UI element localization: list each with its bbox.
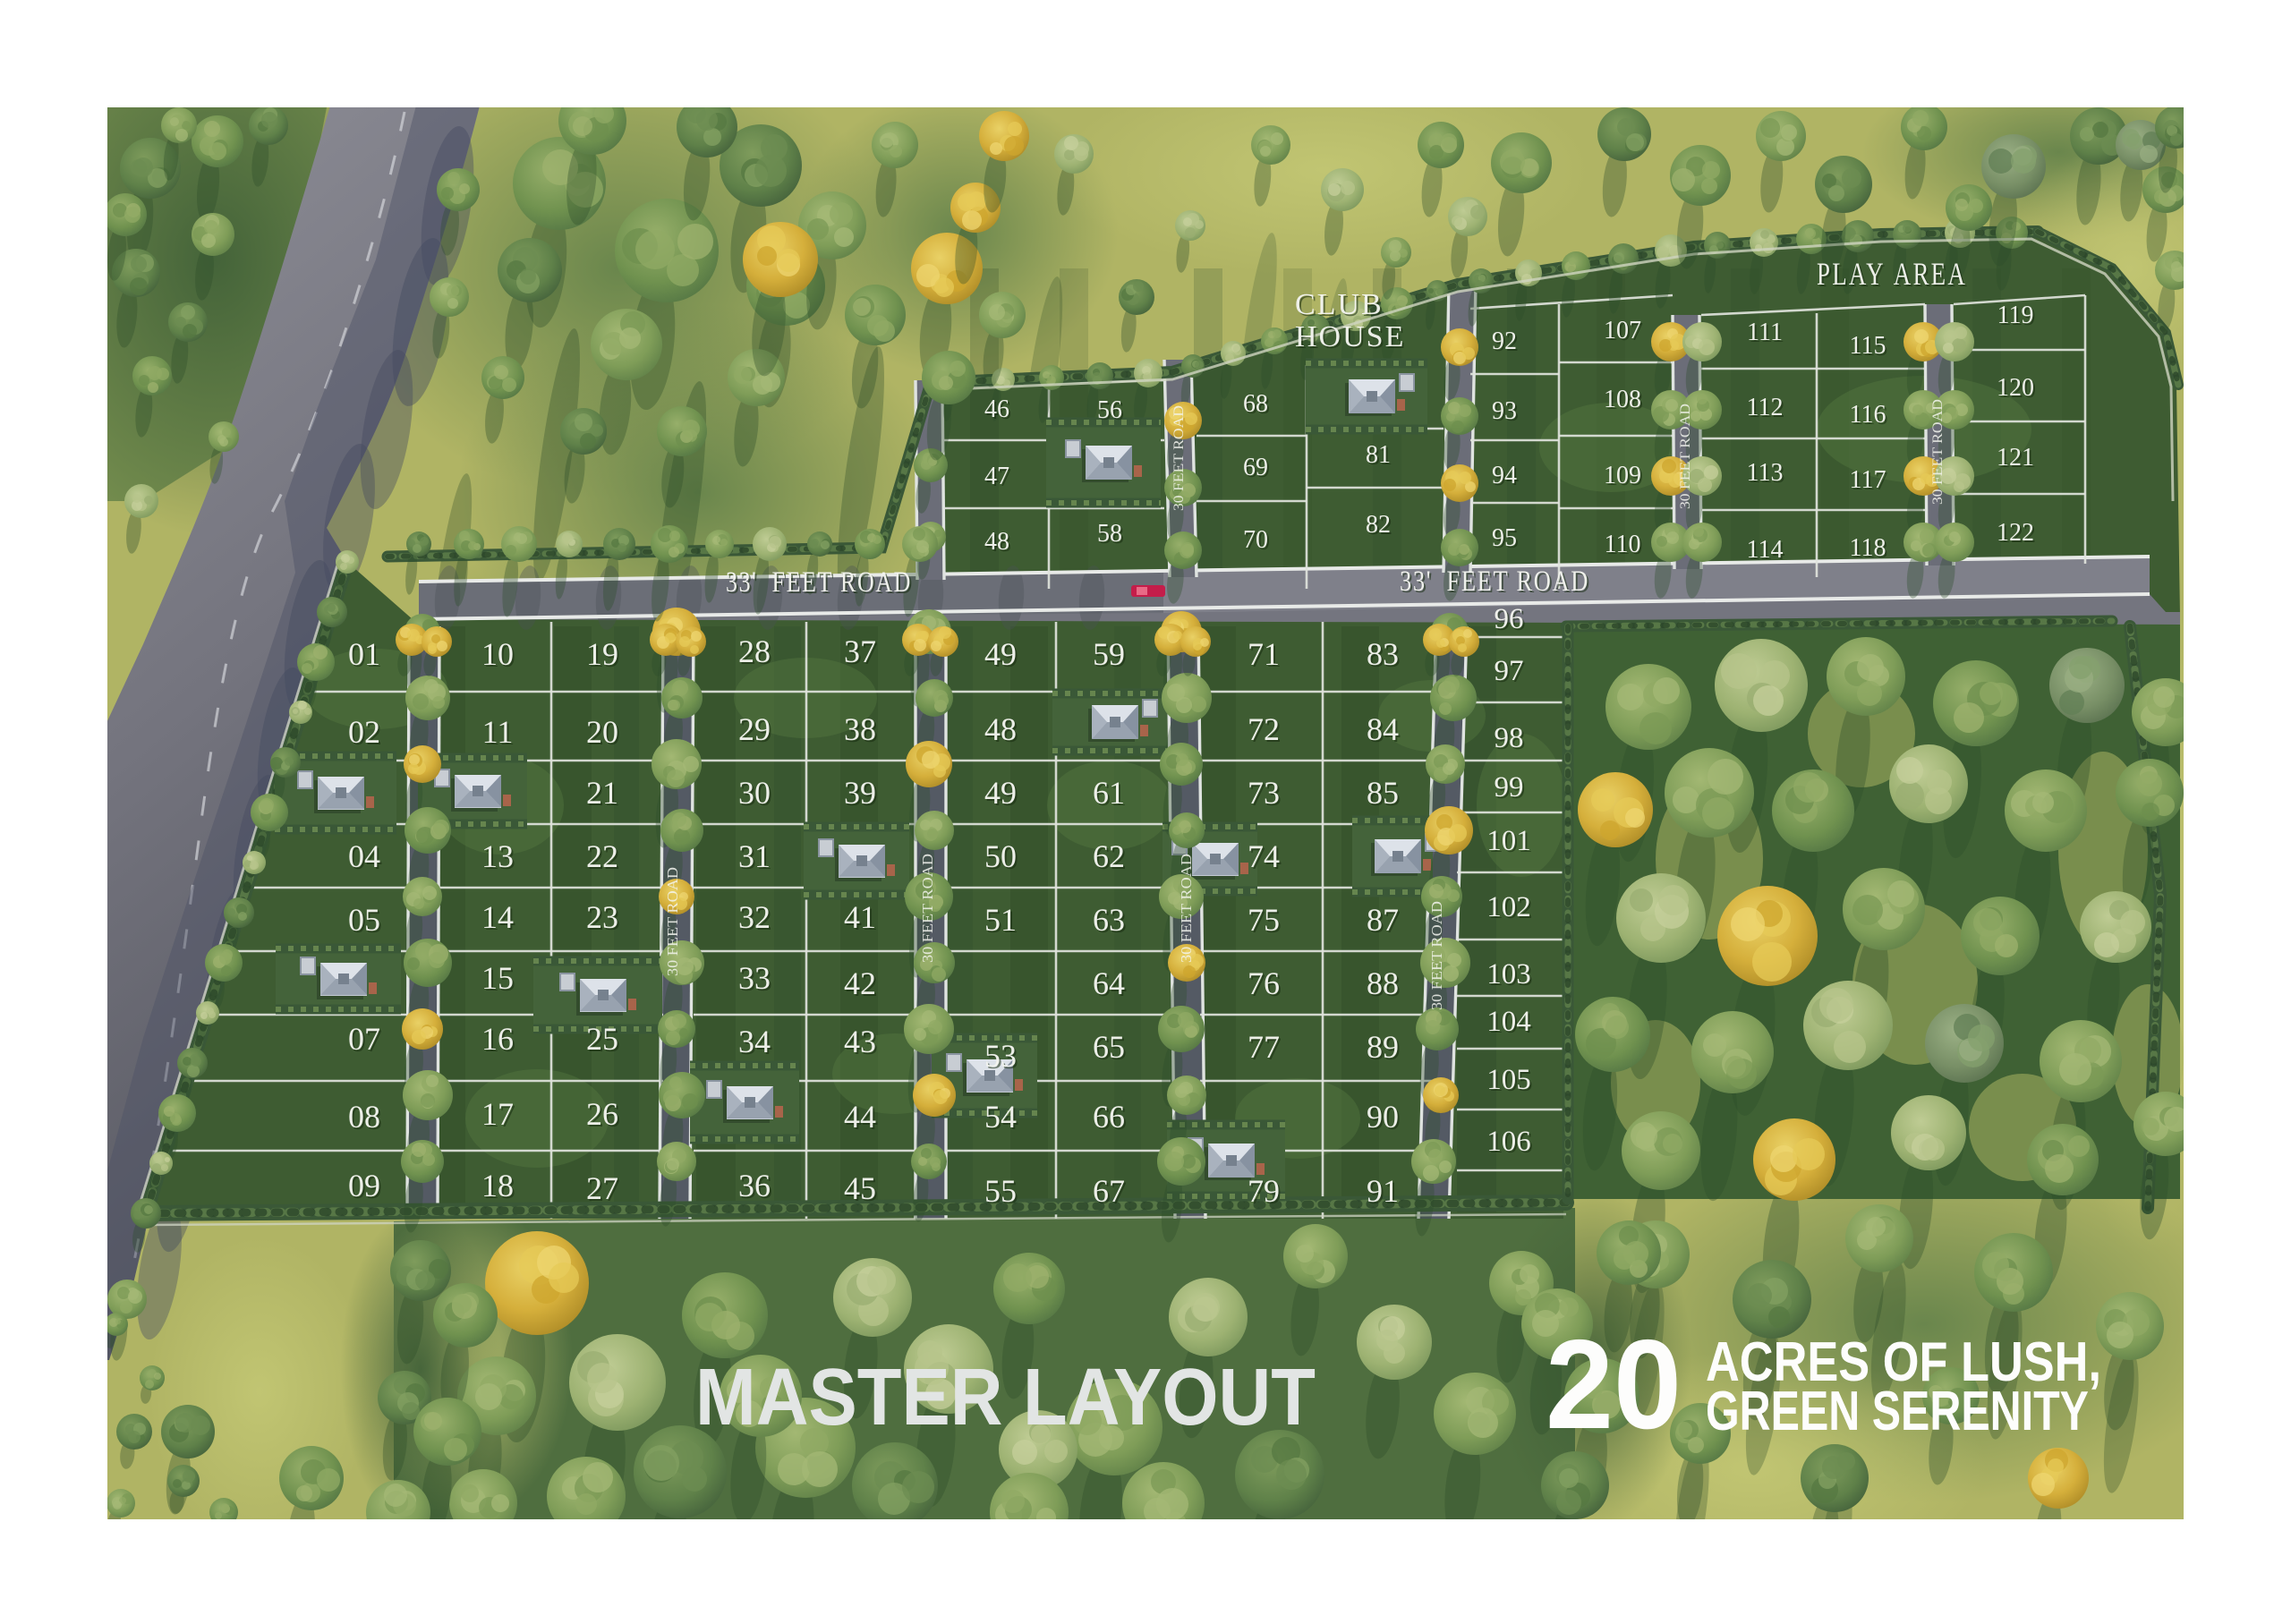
svg-text:41: 41 [844, 899, 876, 935]
svg-text:44: 44 [844, 1099, 876, 1135]
svg-text:120: 120 [1997, 374, 2034, 402]
svg-text:30 FEET ROAD: 30 FEET ROAD [1171, 405, 1187, 511]
svg-text:14: 14 [481, 899, 514, 935]
svg-text:30 FEET ROAD: 30 FEET ROAD [1930, 399, 1946, 505]
svg-text:51: 51 [984, 902, 1017, 938]
svg-text:70: 70 [1243, 526, 1268, 554]
svg-text:67: 67 [1093, 1173, 1125, 1209]
svg-text:75: 75 [1248, 902, 1280, 938]
svg-text:01: 01 [348, 636, 380, 672]
svg-text:16: 16 [481, 1021, 514, 1057]
svg-text:110: 110 [1605, 531, 1641, 558]
svg-text:61: 61 [1093, 775, 1125, 811]
svg-text:94: 94 [1492, 462, 1517, 489]
svg-text:26: 26 [586, 1096, 618, 1132]
svg-text:19: 19 [586, 636, 618, 672]
svg-text:49: 49 [984, 775, 1017, 811]
svg-text:88: 88 [1367, 965, 1399, 1001]
svg-text:84: 84 [1367, 711, 1399, 747]
svg-text:45: 45 [844, 1170, 876, 1206]
svg-text:37: 37 [844, 633, 876, 669]
svg-text:25: 25 [586, 1021, 618, 1057]
svg-text:36: 36 [738, 1168, 771, 1203]
svg-text:20: 20 [586, 714, 618, 750]
svg-text:15: 15 [481, 960, 514, 996]
svg-text:63: 63 [1093, 902, 1125, 938]
svg-text:106: 106 [1486, 1126, 1531, 1158]
svg-text:33' FEET ROAD: 33' FEET ROAD [726, 566, 912, 599]
svg-text:97: 97 [1495, 655, 1524, 687]
svg-text:89: 89 [1367, 1029, 1399, 1065]
svg-text:90: 90 [1367, 1099, 1399, 1135]
svg-text:98: 98 [1495, 722, 1524, 754]
svg-text:93: 93 [1492, 397, 1517, 425]
svg-text:38: 38 [844, 711, 876, 747]
svg-text:111: 111 [1747, 319, 1783, 346]
svg-text:117: 117 [1850, 466, 1886, 494]
svg-text:99: 99 [1495, 771, 1524, 803]
svg-text:08: 08 [348, 1099, 380, 1135]
svg-text:10: 10 [481, 636, 514, 672]
svg-text:55: 55 [984, 1173, 1017, 1209]
svg-text:30 FEET ROAD: 30 FEET ROAD [1178, 854, 1195, 963]
svg-text:34: 34 [738, 1024, 771, 1059]
svg-text:30: 30 [738, 775, 771, 811]
svg-text:69: 69 [1243, 454, 1268, 481]
svg-text:101: 101 [1486, 825, 1531, 857]
svg-text:11: 11 [482, 714, 514, 750]
svg-text:04: 04 [348, 838, 380, 874]
svg-text:13: 13 [481, 838, 514, 874]
svg-text:116: 116 [1850, 401, 1886, 429]
svg-text:HOUSE: HOUSE [1295, 320, 1405, 353]
svg-text:62: 62 [1093, 838, 1125, 874]
svg-text:47: 47 [984, 463, 1009, 490]
svg-text:82: 82 [1366, 511, 1391, 539]
svg-text:83: 83 [1367, 636, 1399, 672]
svg-text:58: 58 [1097, 520, 1122, 548]
svg-text:CLUB: CLUB [1295, 288, 1384, 321]
svg-text:27: 27 [586, 1170, 618, 1206]
svg-text:30 FEET ROAD: 30 FEET ROAD [1678, 404, 1693, 509]
svg-text:32: 32 [738, 899, 771, 935]
svg-text:92: 92 [1492, 327, 1517, 355]
svg-text:21: 21 [586, 775, 618, 811]
svg-text:77: 77 [1248, 1029, 1280, 1065]
svg-text:50: 50 [984, 838, 1017, 874]
svg-text:33: 33 [738, 960, 771, 996]
svg-text:118: 118 [1850, 534, 1886, 562]
svg-text:30 FEET ROAD: 30 FEET ROAD [664, 867, 681, 976]
svg-text:18: 18 [481, 1168, 514, 1203]
svg-text:23: 23 [586, 899, 618, 935]
svg-text:108: 108 [1604, 386, 1641, 413]
svg-text:91: 91 [1367, 1173, 1399, 1209]
svg-text:81: 81 [1366, 441, 1391, 469]
svg-text:96: 96 [1495, 603, 1524, 635]
svg-text:73: 73 [1248, 775, 1280, 811]
svg-text:GREEN SERENITY: GREEN SERENITY [1706, 1381, 2089, 1442]
svg-text:115: 115 [1850, 332, 1886, 360]
svg-text:66: 66 [1093, 1099, 1125, 1135]
svg-text:102: 102 [1486, 891, 1531, 923]
svg-text:46: 46 [984, 395, 1009, 423]
svg-text:121: 121 [1997, 444, 2034, 472]
svg-text:49: 49 [984, 636, 1017, 672]
svg-text:05: 05 [348, 902, 380, 938]
svg-text:76: 76 [1248, 965, 1280, 1001]
svg-text:48: 48 [984, 528, 1009, 556]
svg-text:59: 59 [1093, 636, 1125, 672]
svg-text:114: 114 [1747, 536, 1784, 564]
svg-text:39: 39 [844, 775, 876, 811]
svg-text:65: 65 [1093, 1029, 1125, 1065]
svg-text:68: 68 [1243, 390, 1268, 418]
svg-text:MASTER LAYOUT: MASTER LAYOUT [695, 1353, 1316, 1442]
svg-text:105: 105 [1486, 1064, 1531, 1096]
svg-text:17: 17 [481, 1096, 514, 1132]
svg-text:09: 09 [348, 1168, 380, 1203]
svg-text:122: 122 [1997, 519, 2034, 547]
svg-text:87: 87 [1367, 902, 1399, 938]
svg-text:54: 54 [984, 1099, 1017, 1135]
svg-text:109: 109 [1604, 462, 1641, 489]
svg-text:PLAY AREA: PLAY AREA [1817, 256, 1967, 292]
svg-text:31: 31 [738, 838, 771, 874]
svg-text:113: 113 [1747, 459, 1784, 487]
svg-text:64: 64 [1093, 965, 1125, 1001]
svg-text:74: 74 [1248, 838, 1280, 874]
svg-text:20: 20 [1546, 1314, 1682, 1456]
svg-text:33' FEET ROAD: 33' FEET ROAD [1400, 565, 1589, 598]
svg-text:103: 103 [1486, 958, 1531, 991]
svg-text:85: 85 [1367, 775, 1399, 811]
svg-text:53: 53 [984, 1038, 1017, 1074]
svg-text:42: 42 [844, 965, 876, 1001]
svg-text:07: 07 [348, 1021, 380, 1057]
svg-text:43: 43 [844, 1024, 876, 1059]
svg-text:112: 112 [1747, 394, 1784, 421]
svg-text:29: 29 [738, 711, 771, 747]
svg-text:30 FEET ROAD: 30 FEET ROAD [1428, 901, 1445, 1010]
svg-text:28: 28 [738, 633, 771, 669]
svg-text:104: 104 [1486, 1006, 1531, 1038]
svg-text:95: 95 [1492, 524, 1517, 552]
svg-text:30 FEET ROAD: 30 FEET ROAD [919, 854, 936, 963]
svg-text:79: 79 [1248, 1173, 1280, 1209]
svg-text:71: 71 [1248, 636, 1280, 672]
svg-text:02: 02 [348, 714, 380, 750]
svg-text:48: 48 [984, 711, 1017, 747]
svg-text:72: 72 [1248, 711, 1280, 747]
svg-text:107: 107 [1604, 317, 1641, 344]
svg-text:22: 22 [586, 838, 618, 874]
svg-text:119: 119 [1997, 302, 2034, 329]
svg-text:56: 56 [1097, 396, 1122, 424]
